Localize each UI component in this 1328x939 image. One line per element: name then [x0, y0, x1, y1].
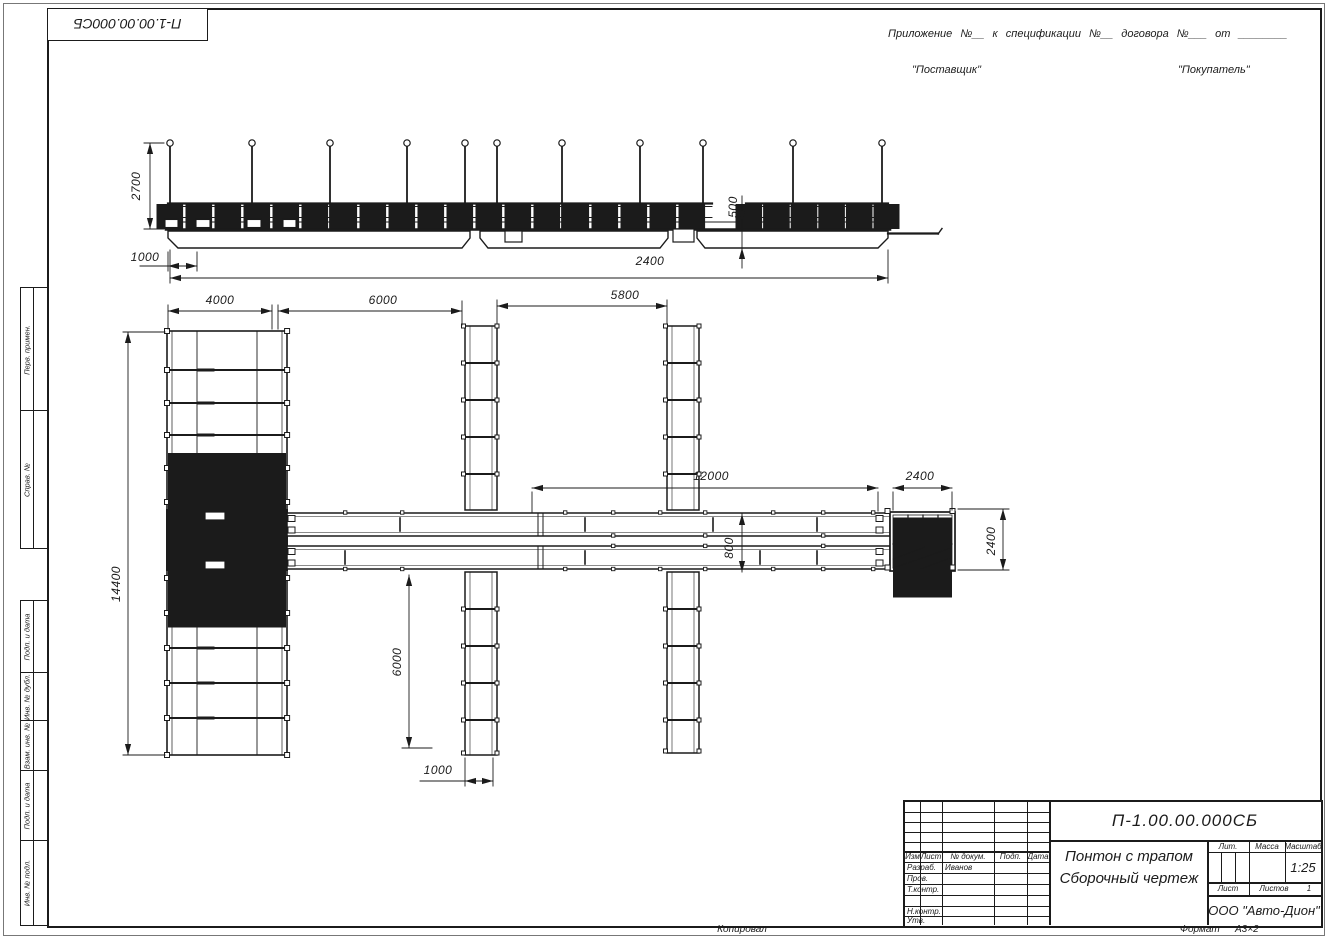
dim-side-ramp-offset: 1000 [131, 250, 160, 264]
frame-column-inv-orig: Инв. № подл. [20, 840, 48, 926]
tb-sheets-value: 1 [1299, 882, 1319, 895]
tb-row-ncontrol: Н.контр. [905, 906, 944, 916]
tb-col-data: Дата [1027, 851, 1049, 862]
tb-developed-name: Иванов [943, 862, 995, 873]
tb-doc-type: Сборочный чертеж [1051, 866, 1207, 890]
dim-plan-pier-width: 1000 [424, 763, 453, 777]
side-view [165, 140, 942, 248]
frame-column-inv-dupl: Инв. № дубл. [20, 672, 48, 722]
dim-side-length: 2400 [636, 254, 665, 268]
frame-column-label: Подп. и дата [23, 783, 32, 830]
dim-plan-end-platform: 2400 [906, 469, 935, 483]
tb-row-checked: Пров. [905, 873, 944, 884]
tb-row-tcontrol: Т.контр. [905, 884, 944, 895]
corner-stamp-doc-number: П-1.00.00.000СБ [74, 17, 182, 33]
tb-scale-label: Масштаб [1285, 841, 1321, 852]
frame-column-first-application: Перв. примен. [20, 287, 48, 412]
tb-row-developed: Разраб. [905, 862, 944, 873]
frame-column-label: Справ. № [23, 462, 32, 496]
footer-format-label: Формат [1180, 924, 1220, 935]
dim-plan-pier-length: 6000 [390, 648, 404, 677]
corner-stamp: П-1.00.00.000СБ [47, 8, 208, 41]
frame-column-label: Взам. инв. № [23, 723, 32, 769]
frame-column-label: Инв. № дубл. [23, 674, 32, 720]
frame-column-signature-date-1: Подп. и дата [20, 600, 48, 674]
dim-plan-walkway-gap: 800 [722, 537, 736, 559]
dim-side-freeboard: 500 [726, 196, 740, 218]
supplier-label: "Поставщик" [912, 64, 981, 76]
dim-plan-seg2: 6000 [369, 293, 398, 307]
frame-column-label: Подп. и дата [23, 614, 32, 661]
footer-format-value: А3×2 [1235, 924, 1259, 935]
frame-column-signature-date-2: Подп. и дата [20, 770, 48, 842]
drawing-linework [0, 0, 1328, 939]
dim-plan-walkway: 12000 [693, 469, 729, 483]
dim-plan-end-width: 2400 [984, 527, 998, 556]
frame-column-repl-inv: Взам. инв. № [20, 720, 48, 772]
tb-product-title: Понтон с трапом [1051, 844, 1207, 868]
frame-column-label: Инв. № подл. [23, 860, 32, 907]
buyer-label: "Покупатель" [1178, 64, 1250, 76]
footer-copied: Копировал [702, 924, 782, 935]
tb-doc-number: П-1.00.00.000СБ [1049, 804, 1321, 838]
tb-lit-label: Лит. [1207, 841, 1249, 852]
dim-plan-seg1: 4000 [206, 293, 235, 307]
dim-plan-seg3: 5800 [611, 288, 640, 302]
tb-scale-value: 1:25 [1285, 852, 1321, 882]
tb-mass-label: Масса [1249, 841, 1285, 852]
dim-side-pole-height: 2700 [129, 172, 143, 201]
tb-col-izm: Изм [905, 851, 920, 862]
tb-col-podp: Подп. [994, 851, 1027, 862]
frame-column-label: Перв. примен. [23, 325, 32, 375]
tb-sheet-label: Лист [1207, 882, 1249, 895]
tb-row-approved: Утв. [905, 916, 944, 925]
frame-column-reference-number: Справ. № [20, 410, 48, 549]
tb-company: ООО "Авто-Дион" [1207, 895, 1321, 925]
plan-view [165, 324, 956, 758]
title-block: Изм Лист № докум. Подп. Дата Разраб. Ива… [903, 800, 1323, 928]
appendix-line: Приложение №__ к спецификации №__ догово… [888, 28, 1287, 40]
drawing-sheet: { "colors": { "ink": "#1b1b1b", "paper":… [0, 0, 1328, 939]
dim-plan-overall-width: 14400 [109, 566, 123, 602]
tb-col-docnum: № докум. [942, 851, 994, 862]
tb-col-list: Лист [920, 851, 942, 862]
tb-sheets-label: Листов [1249, 882, 1299, 895]
